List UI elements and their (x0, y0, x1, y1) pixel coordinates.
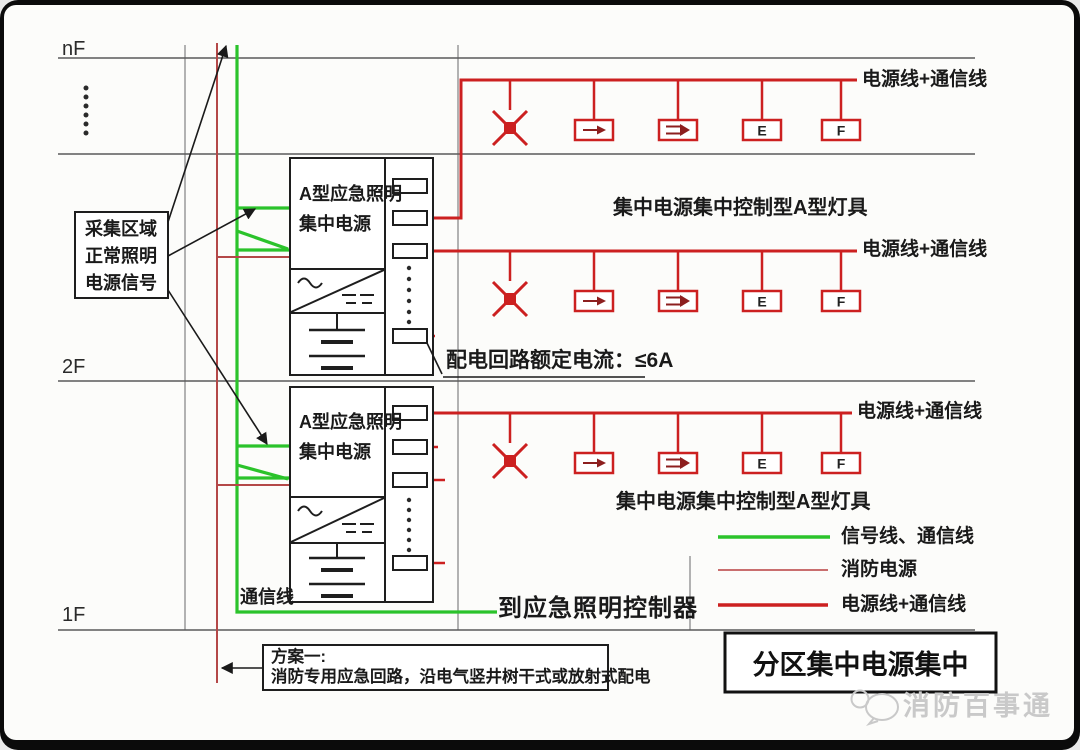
collect-box-line2: 正常照明 (85, 246, 157, 266)
ceiling-lamp-x-icon (493, 444, 527, 478)
watermark-logo-icon (852, 691, 899, 725)
wire-label-row-3: 电源线+通信线 (857, 401, 982, 422)
floor-label-1f: 1F (62, 604, 85, 626)
floor-label-2f: 2F (62, 356, 85, 378)
lamp-letter: F (837, 123, 846, 139)
collect-box-line3: 电源信号 (85, 273, 157, 293)
power-unit-2-title-line1: A型应急照明 (299, 412, 402, 432)
lamp-row-3: E F (493, 413, 860, 478)
legend-label-power-comm: 电源线+通信线 (841, 594, 966, 615)
power-unit-1-title-line2: 集中电源 (299, 214, 371, 234)
legend-lines (718, 537, 830, 605)
lamp-letter: F (837, 294, 846, 310)
lamp-caption-row-3: 集中电源集中控制型A型灯具 (616, 491, 870, 513)
legend-label-signal: 信号线、通信线 (841, 526, 974, 547)
to-controller-label: 到应急照明控制器 (498, 596, 698, 623)
lamp-letter: F (837, 456, 846, 472)
floor-ellipsis-dots (84, 86, 89, 136)
drawing-title: 分区集中电源集中 (725, 633, 996, 692)
floor-lines (58, 58, 975, 630)
screenshot-frame: E F E (0, 0, 1080, 750)
power-unit-1-title-line1: A型应急照明 (299, 184, 402, 204)
wire-label-row-2: 电源线+通信线 (862, 239, 987, 260)
ceiling-lamp-x-icon (493, 282, 527, 316)
lamp-letter: E (757, 456, 766, 472)
comm-line-label: 通信线 (240, 587, 294, 607)
plan-box-line2: 消防专用应急回路，沿电气竖井树干式或放射式配电 (271, 668, 651, 686)
collect-box-line1: 采集区域 (85, 219, 157, 239)
ceiling-lamp-x-icon (493, 111, 527, 145)
circuit-note: 配电回路额定电流：≤6A (446, 349, 673, 373)
legend-label-fire-power: 消防电源 (841, 559, 917, 580)
floor-label-nf: nF (62, 38, 85, 60)
lamp-letter: E (757, 294, 766, 310)
watermark-text: 消防百事通 (903, 691, 1053, 721)
wire-label-row-1: 电源线+通信线 (862, 69, 987, 90)
power-unit-2-title-line2: 集中电源 (299, 442, 371, 462)
plan-box-line1: 方案一: (271, 648, 326, 666)
lamp-caption-row-1: 集中电源集中控制型A型灯具 (613, 197, 867, 219)
lamp-letter: E (757, 123, 766, 139)
lamp-row-2: E F (493, 251, 860, 316)
lamp-row-1: E F (493, 80, 860, 145)
